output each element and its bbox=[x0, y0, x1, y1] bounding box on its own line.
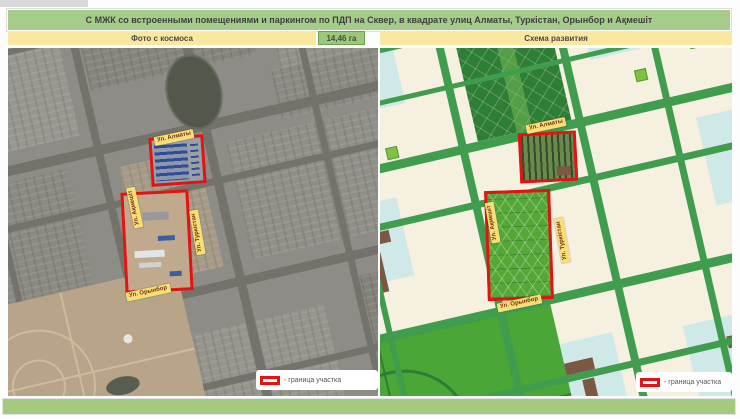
boundary-legend-icon bbox=[260, 376, 280, 385]
scheme-map[interactable]: Ул. Алматы Ул. Ақмешіт Ул. Туркістан Ул.… bbox=[380, 48, 732, 396]
blue-roof-buildings bbox=[154, 143, 189, 181]
slide-title-text: С МЖК со встроенными помещениями и парки… bbox=[86, 15, 653, 25]
slide-background: С МЖК со встроенными помещениями и парки… bbox=[0, 0, 740, 419]
top-left-tab bbox=[0, 0, 88, 7]
slide-title: С МЖК со встроенными помещениями и парки… bbox=[7, 9, 731, 31]
area-badge: 14,46 га bbox=[318, 31, 365, 45]
area-badge-text: 14,46 га bbox=[326, 34, 356, 43]
legend-right-map: - граница участка bbox=[636, 372, 732, 392]
bottom-green-strip bbox=[2, 398, 736, 415]
legend-left-map: - граница участка bbox=[256, 370, 378, 390]
right-panel-header-text: Схема развития bbox=[524, 34, 588, 43]
park-pond bbox=[104, 373, 141, 396]
legend-left-text: - граница участка bbox=[284, 377, 341, 384]
site-boundary-upper-right-map bbox=[518, 131, 579, 184]
site-boundary-lower-right-map bbox=[484, 189, 554, 301]
left-panel-header-text: Фото с космоса bbox=[131, 34, 193, 43]
satellite-map[interactable]: Ул. Алматы Ул. Ақмешіт Ул. Туркістан Ул.… bbox=[8, 48, 378, 396]
park-fountain bbox=[123, 333, 134, 344]
boundary-legend-icon bbox=[640, 378, 660, 387]
legend-right-text: - граница участка bbox=[664, 379, 721, 386]
left-panel-header: Фото с космоса bbox=[8, 31, 316, 45]
right-panel-header: Схема развития bbox=[380, 31, 732, 45]
